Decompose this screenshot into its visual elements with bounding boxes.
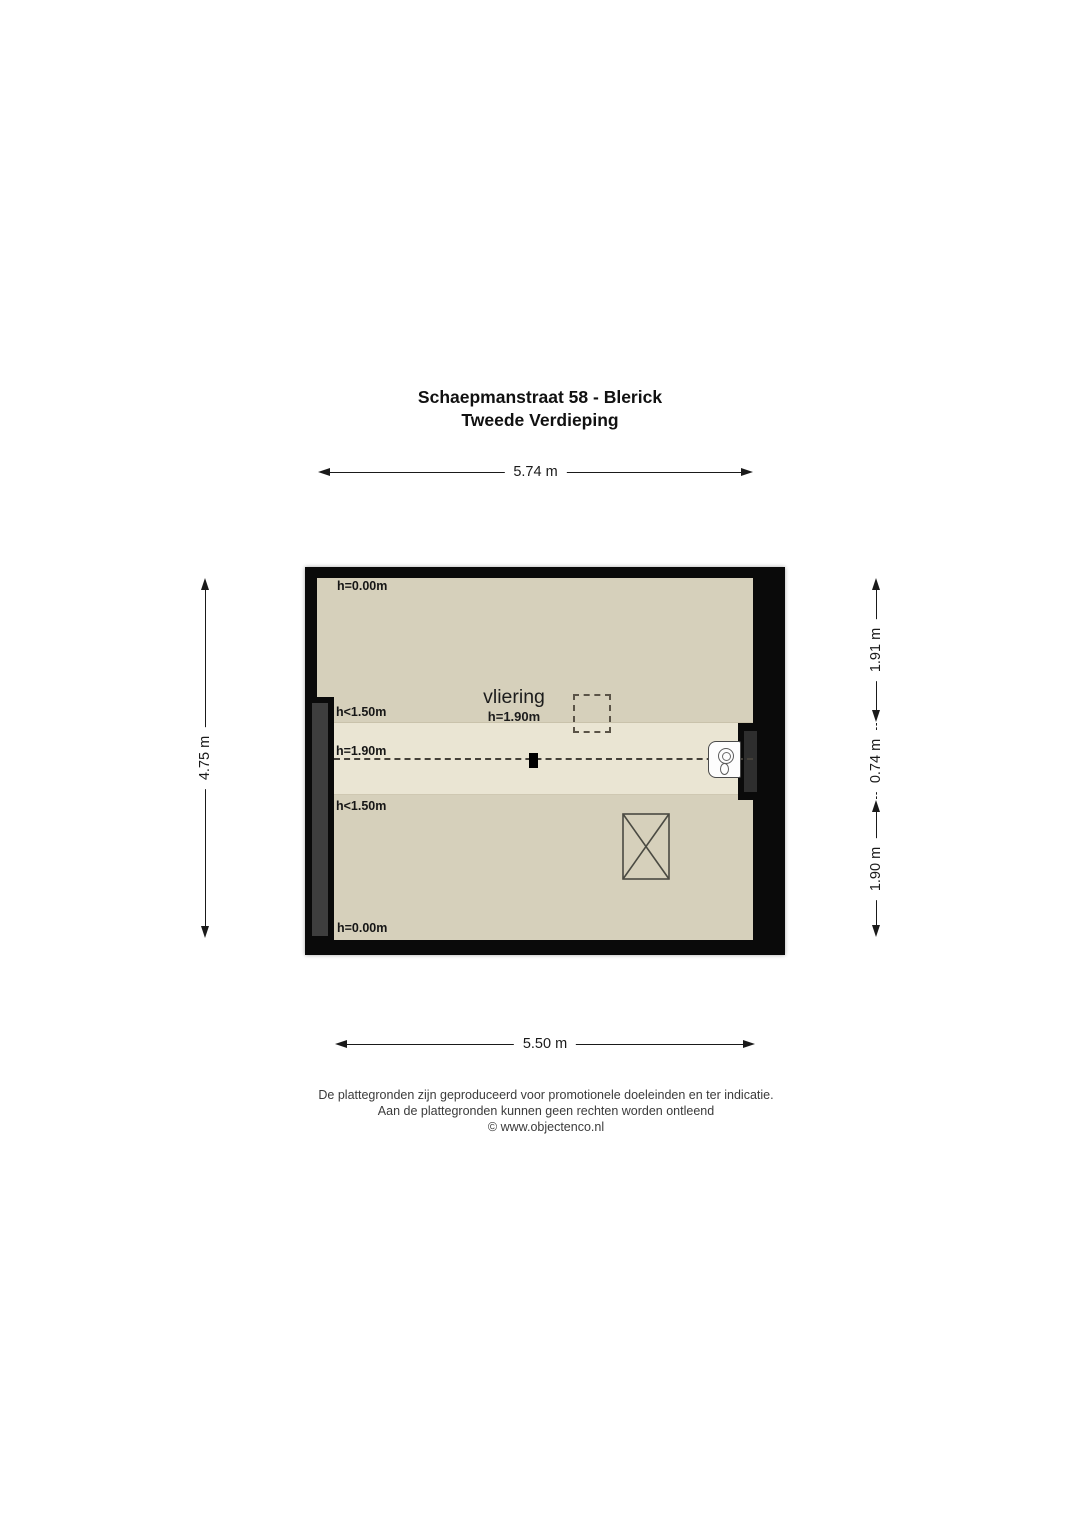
boiler-knob-icon xyxy=(720,763,729,775)
height-label-bottom: h=0.00m xyxy=(337,921,387,935)
footer-disclaimer: De plattegronden zijn geproduceerd voor … xyxy=(0,1087,1080,1135)
dimension-bottom-label: 5.50 m xyxy=(514,1036,576,1052)
support-post-icon xyxy=(529,753,538,768)
footer-line-2: Aan de plattegronden kunnen geen rechten… xyxy=(0,1103,1080,1119)
dimension-right-middle-label: 0.74 m xyxy=(868,730,884,792)
dimension-right-top: 1.91 m xyxy=(868,578,884,722)
dimension-tick xyxy=(876,792,877,799)
knee-wall-inset xyxy=(312,703,328,936)
height-label-top: h=0.00m xyxy=(337,579,387,593)
page-title-address: Schaepmanstraat 58 - Blerick xyxy=(0,386,1080,409)
dimension-top-label: 5.74 m xyxy=(504,464,566,480)
room-name: vliering xyxy=(444,686,584,709)
arrow-left-icon xyxy=(335,1040,347,1048)
arrow-left-icon xyxy=(318,468,330,476)
dimension-bottom: 5.50 m xyxy=(335,1036,755,1052)
page-title: Schaepmanstraat 58 - Blerick Tweede Verd… xyxy=(0,386,1080,432)
dimension-right-bottom: 1.90 m xyxy=(868,800,884,937)
arrow-down-icon xyxy=(872,710,880,722)
ridge-line-icon xyxy=(334,758,753,760)
arrow-right-icon xyxy=(741,468,753,476)
arrow-up-icon xyxy=(201,578,209,590)
footer-line-1: De plattegronden zijn geproduceerd voor … xyxy=(0,1087,1080,1103)
room-height-label: h=1.90m xyxy=(444,709,584,724)
height-label-lower: h<1.50m xyxy=(336,799,386,813)
dimension-left: 4.75 m xyxy=(197,578,213,938)
boiler-dial-icon xyxy=(718,748,734,764)
height-label-upper: h<1.50m xyxy=(336,705,386,719)
dimension-right-middle: 0.74 m xyxy=(868,722,884,800)
arrow-right-icon xyxy=(743,1040,755,1048)
arrow-down-icon xyxy=(872,925,880,937)
arrow-up-icon xyxy=(872,800,880,812)
floorplan-drawing: h=0.00m h<1.50m h=1.90m h<1.50m h=0.00m … xyxy=(305,567,785,955)
stair-opening-icon xyxy=(622,813,670,880)
boiler-icon xyxy=(708,741,741,778)
footer-copyright: © www.objectenco.nl xyxy=(0,1119,1080,1135)
page-title-floor: Tweede Verdieping xyxy=(0,409,1080,432)
floor-area-lower xyxy=(334,795,753,940)
arrow-up-icon xyxy=(872,578,880,590)
chimney-duct xyxy=(744,731,757,792)
dimension-left-label: 4.75 m xyxy=(197,727,213,789)
arrow-down-icon xyxy=(201,926,209,938)
height-label-middle: h=1.90m xyxy=(336,744,386,758)
dimension-right-top-label: 1.91 m xyxy=(868,619,884,681)
dimension-right-bottom-label: 1.90 m xyxy=(868,837,884,899)
floorplan-page: Schaepmanstraat 58 - Blerick Tweede Verd… xyxy=(0,0,1080,1527)
dimension-top: 5.74 m xyxy=(318,464,753,480)
